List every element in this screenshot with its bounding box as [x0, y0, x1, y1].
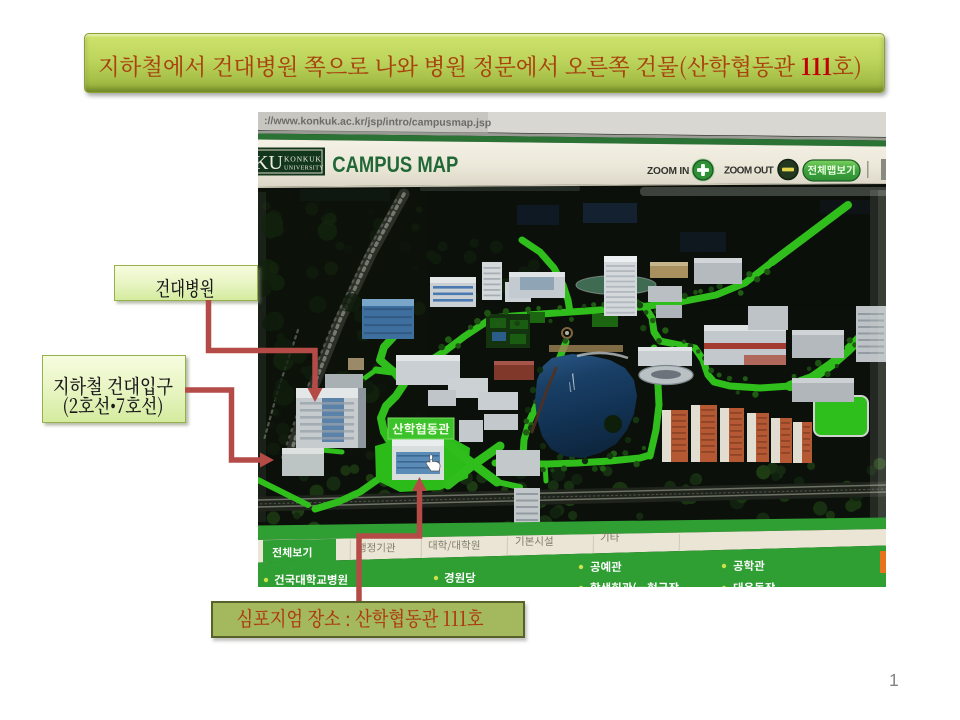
- svg-text:://www.konkuk.ac.kr/jsp/intro/: ://www.konkuk.ac.kr/jsp/intro/campusmap.…: [264, 115, 491, 129]
- svg-text:ZOOM IN: ZOOM IN: [647, 166, 689, 177]
- svg-text:UNIVERSITY: UNIVERSITY: [284, 166, 324, 172]
- svg-text:ZOOM OUT: ZOOM OUT: [724, 166, 774, 177]
- svg-text:KU: KU: [258, 152, 283, 174]
- svg-text:KONKUK: KONKUK: [284, 155, 322, 164]
- svg-text:CAMPUS MAP: CAMPUS MAP: [332, 152, 458, 177]
